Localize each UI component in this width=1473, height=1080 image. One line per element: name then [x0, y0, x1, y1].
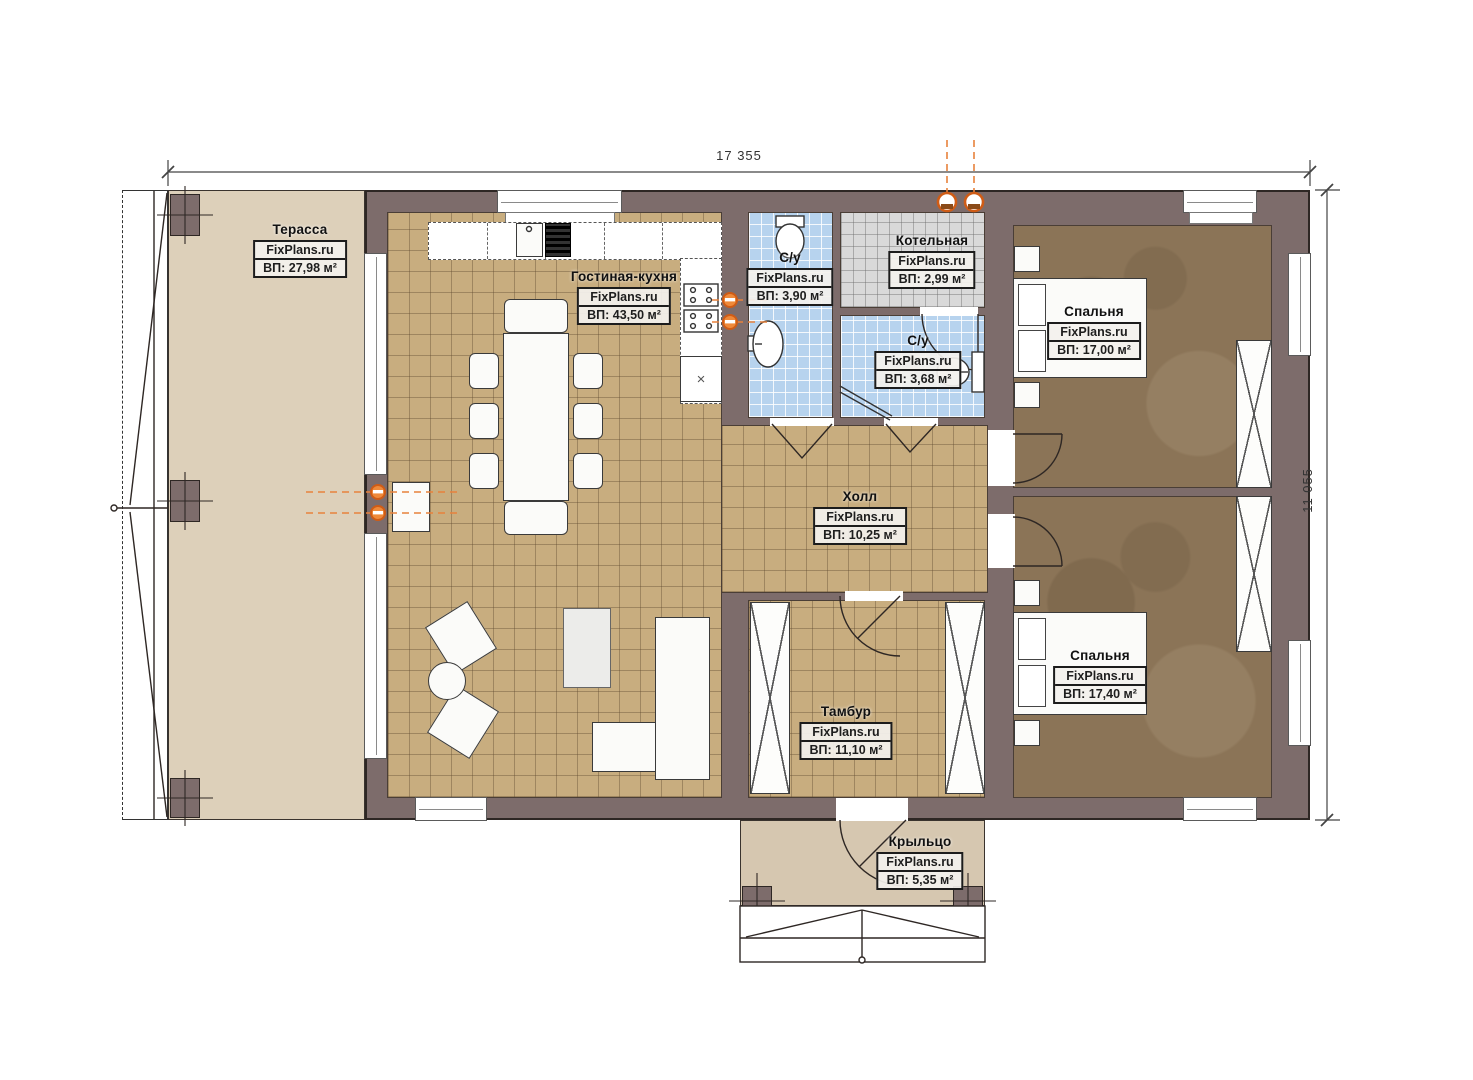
nightstand: [1014, 580, 1040, 606]
room-site: FixPlans.ru: [1049, 324, 1139, 340]
dimension-width-label: 17 355: [716, 148, 762, 163]
room-name: Котельная: [888, 233, 975, 248]
dining-chair: [469, 403, 499, 439]
room-area: ВП: 3,90 м²: [748, 286, 831, 304]
room-info-box: FixPlans.ru ВП: 5,35 м²: [876, 852, 963, 890]
window-living-bottom: [415, 797, 487, 821]
room-site: FixPlans.ru: [890, 253, 973, 269]
porch-post-right: [953, 886, 983, 916]
kitchen-counter-top: [428, 222, 722, 260]
room-name: Спальня: [1047, 304, 1141, 319]
room-label-boiler: Котельная FixPlans.ru ВП: 2,99 м²: [888, 233, 975, 289]
wardrobe-bedroom1: [1236, 340, 1272, 488]
room-info-box: FixPlans.ru ВП: 43,50 м²: [577, 287, 671, 325]
axis-node: [111, 505, 117, 511]
room-area: ВП: 3,68 м²: [876, 369, 959, 387]
entrance-door-opening: [836, 798, 908, 821]
room-area: ВП: 11,10 м²: [801, 740, 890, 758]
room-label-bedroom-1: Спальня FixPlans.ru ВП: 17,00 м²: [1047, 304, 1141, 360]
dining-table: [503, 333, 569, 501]
room-name: Крыльцо: [876, 834, 963, 849]
counter-cell: [605, 223, 664, 259]
wardrobe-vestibule-right: [945, 602, 985, 794]
dining-chair-head: [504, 299, 568, 333]
boiler-door-opening: [920, 307, 978, 316]
dimension-tick: [1304, 166, 1316, 178]
dimension-tick: [162, 166, 174, 178]
rug: [563, 608, 611, 688]
pillow: [1018, 330, 1046, 372]
dimension-height-label: 11 055: [1300, 468, 1315, 513]
sofa: [655, 617, 710, 780]
room-label-bedroom-2: Спальня FixPlans.ru ВП: 17,40 м²: [1053, 648, 1147, 704]
window-living-left-1: [364, 253, 387, 475]
counter-cell: [429, 223, 488, 259]
dining-chair: [469, 353, 499, 389]
room-label-hall: Холл FixPlans.ru ВП: 10,25 м²: [813, 489, 907, 545]
room-site: FixPlans.ru: [748, 270, 831, 286]
room-info-box: FixPlans.ru ВП: 2,99 м²: [888, 251, 975, 289]
room-label-bathroom-2: С/у FixPlans.ru ВП: 3,68 м²: [874, 333, 961, 389]
porch-post-left: [742, 886, 772, 916]
kitchen-cabinet-x: ×: [680, 356, 722, 402]
dining-chair: [573, 353, 603, 389]
nightstand: [1014, 720, 1040, 746]
room-info-box: FixPlans.ru ВП: 17,40 м²: [1053, 666, 1147, 704]
room-site: FixPlans.ru: [876, 353, 959, 369]
sofa-chaise: [592, 722, 656, 772]
nightstand: [1014, 246, 1040, 272]
room-area: ВП: 5,35 м²: [878, 870, 961, 888]
counter-cell: [663, 223, 721, 259]
window-bedroom1-top: [1183, 190, 1257, 213]
dining-chair: [573, 453, 603, 489]
room-area: ВП: 17,40 м²: [1055, 684, 1145, 702]
porch-steps: [740, 906, 985, 963]
room-name: Терасса: [253, 222, 347, 237]
room-info-box: FixPlans.ru ВП: 17,00 м²: [1047, 322, 1141, 360]
room-area: ВП: 27,98 м²: [255, 258, 345, 276]
floor-plan-canvas: ×: [0, 0, 1473, 1080]
window-kitchen-top: [497, 190, 622, 213]
vestibule-door-opening: [845, 591, 903, 601]
pillow: [1018, 618, 1046, 660]
room-name: Гостиная-кухня: [571, 269, 677, 284]
dimension-tick: [1321, 814, 1333, 826]
room-site: FixPlans.ru: [1055, 668, 1145, 684]
bathroom2-door-opening: [884, 418, 938, 426]
room-site: FixPlans.ru: [801, 724, 890, 740]
room-info-box: FixPlans.ru ВП: 10,25 м²: [813, 507, 907, 545]
window-bedroom1-sill: [1189, 212, 1253, 224]
pillow: [1018, 284, 1046, 326]
room-area: ВП: 43,50 м²: [579, 305, 669, 323]
window-bedroom2-bottom: [1183, 797, 1257, 821]
window-bedroom2-right: [1288, 640, 1311, 746]
bedroom1-door-opening: [988, 430, 1015, 486]
room-site: FixPlans.ru: [579, 289, 669, 305]
terrace-post-bottom: [170, 778, 200, 818]
room-area: ВП: 10,25 м²: [815, 525, 905, 543]
room-bathroom-1-floor: [748, 212, 833, 418]
room-site: FixPlans.ru: [878, 854, 961, 870]
bedroom2-door-opening: [988, 514, 1015, 568]
kitchen-appliance: [545, 223, 571, 257]
pillow: [1018, 665, 1046, 707]
room-info-box: FixPlans.ru ВП: 27,98 м²: [253, 240, 347, 278]
dining-chair: [469, 453, 499, 489]
room-info-box: FixPlans.ru ВП: 3,68 м²: [874, 351, 961, 389]
terrace-post-top: [170, 194, 200, 236]
room-area: ВП: 17,00 м²: [1049, 340, 1139, 358]
room-label-terrace: Терасса FixPlans.ru ВП: 27,98 м²: [253, 222, 347, 278]
window-bedroom1-right: [1288, 253, 1311, 356]
nightstand: [1014, 382, 1040, 408]
room-name: Спальня: [1053, 648, 1147, 663]
bathroom1-door-opening: [770, 418, 834, 426]
room-name: Холл: [813, 489, 907, 504]
window-living-left-2: [364, 533, 387, 759]
wardrobe-vestibule-left: [750, 602, 790, 794]
room-name: Тамбур: [799, 704, 892, 719]
roof-edge-strip: [122, 190, 168, 820]
coffee-table: [428, 662, 466, 700]
room-label-vestibule: Тамбур FixPlans.ru ВП: 11,10 м²: [799, 704, 892, 760]
cabinet: [392, 482, 430, 532]
room-label-porch: Крыльцо FixPlans.ru ВП: 5,35 м²: [876, 834, 963, 890]
room-info-box: FixPlans.ru ВП: 11,10 м²: [799, 722, 892, 760]
room-label-bathroom-1: С/у FixPlans.ru ВП: 3,90 м²: [746, 250, 833, 306]
terrace-post-mid: [170, 480, 200, 522]
room-name: С/у: [874, 333, 961, 348]
dining-chair-foot: [504, 501, 568, 535]
room-name: С/у: [746, 250, 833, 265]
dining-chair: [573, 403, 603, 439]
room-info-box: FixPlans.ru ВП: 3,90 м²: [746, 268, 833, 306]
wardrobe-bedroom2: [1236, 496, 1272, 652]
room-label-living-kitchen: Гостиная-кухня FixPlans.ru ВП: 43,50 м²: [571, 269, 677, 325]
room-area: ВП: 2,99 м²: [890, 269, 973, 287]
room-site: FixPlans.ru: [255, 242, 345, 258]
kitchen-sink: [516, 223, 543, 257]
room-site: FixPlans.ru: [815, 509, 905, 525]
dimension-tick: [1321, 184, 1333, 196]
